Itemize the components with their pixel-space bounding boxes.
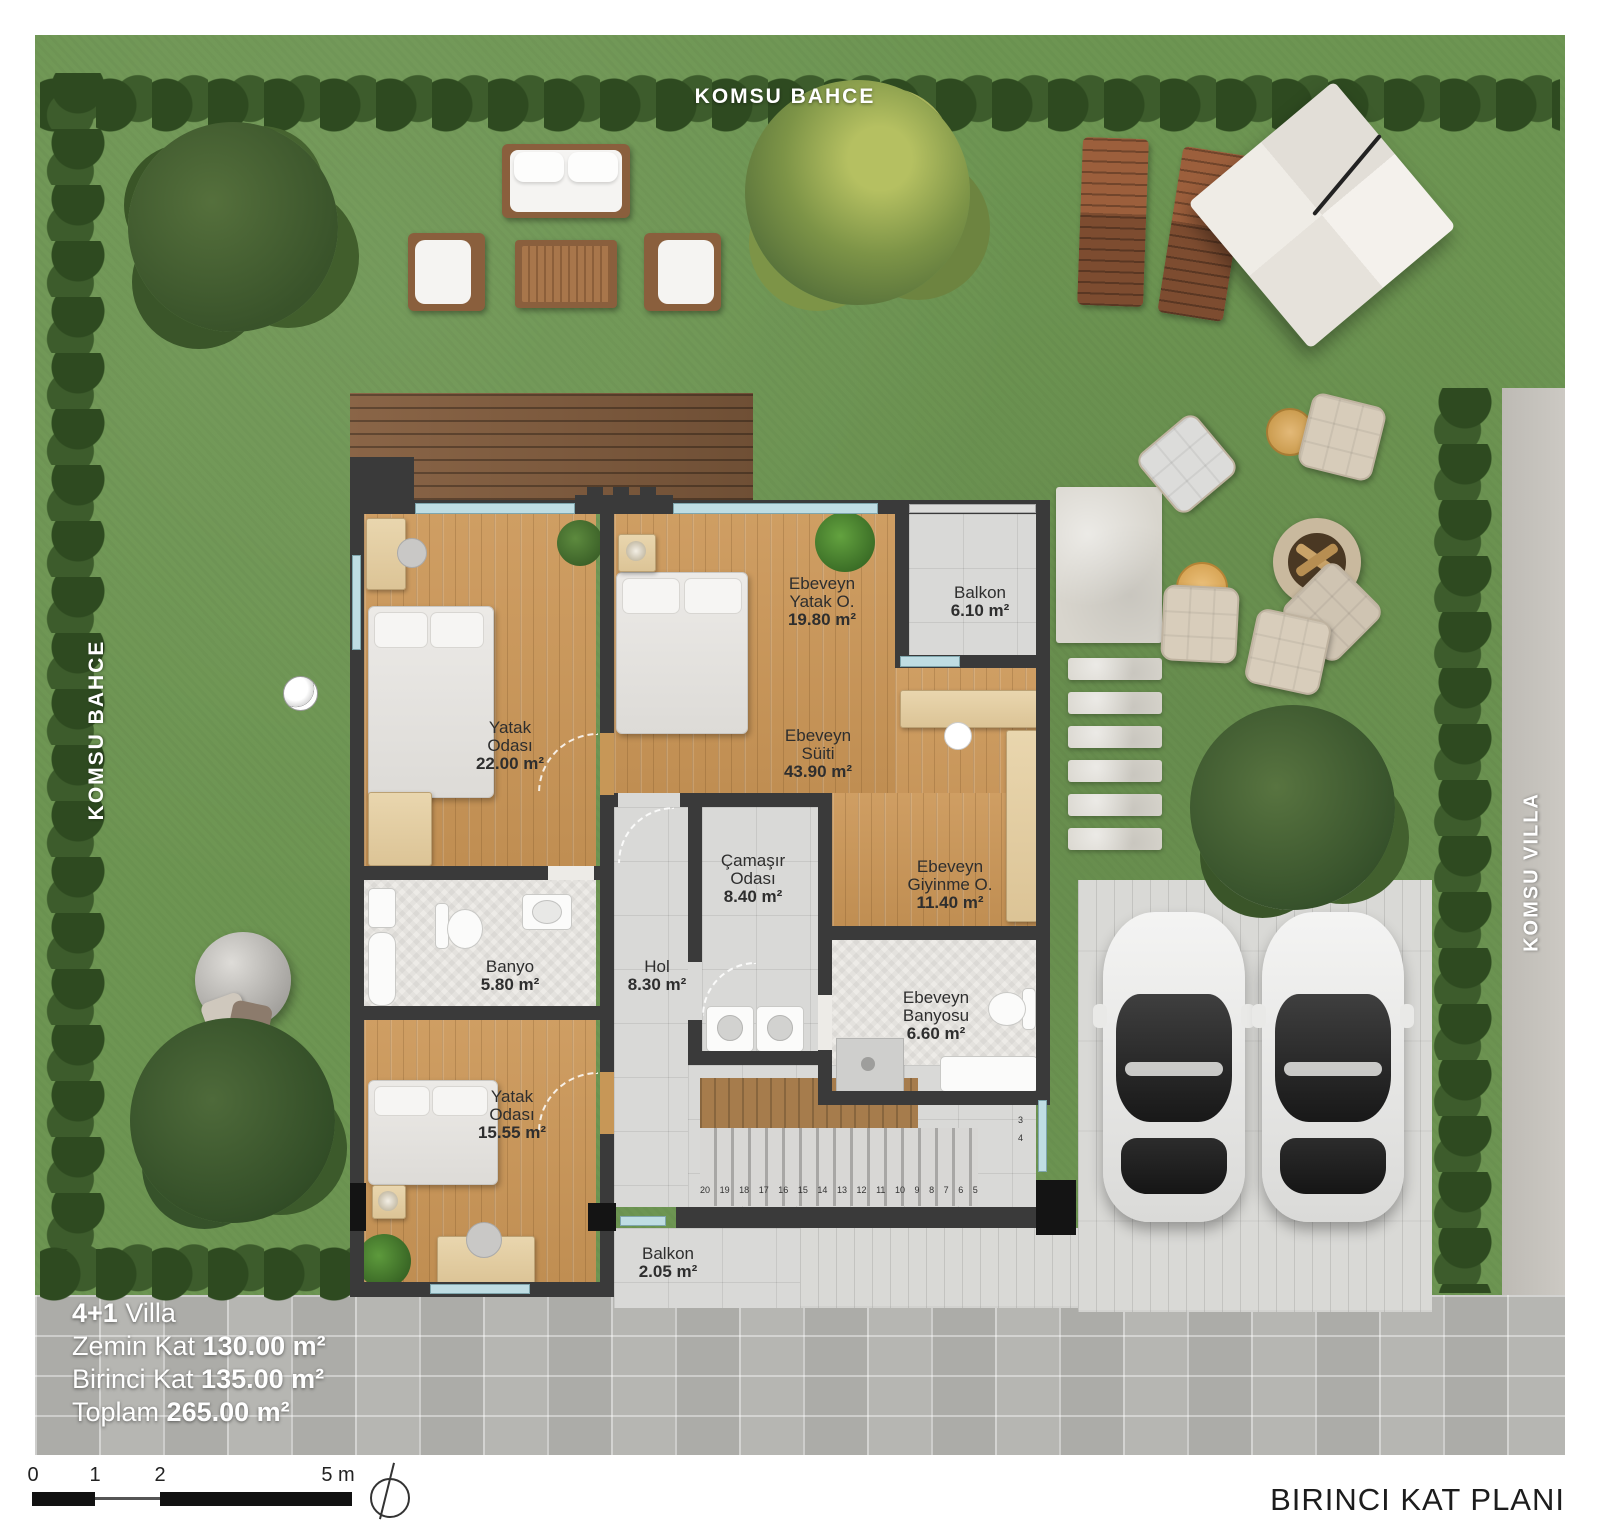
car-windshield-roof xyxy=(1275,994,1391,1122)
room-label-yatak-2: Yatak Odası15.55 m² xyxy=(478,1088,546,1142)
stair-number: 10 xyxy=(895,1185,905,1199)
wall-segment xyxy=(587,487,603,501)
sofa-pillow xyxy=(568,152,618,182)
wall-segment xyxy=(600,500,614,1297)
lamp-2 xyxy=(378,1191,398,1211)
info-text: Birinci Kat xyxy=(72,1364,201,1394)
pillow xyxy=(684,578,742,614)
tree xyxy=(130,1018,335,1223)
scale-bar-line xyxy=(95,1497,160,1500)
garden-chair xyxy=(644,233,721,311)
room-label-camasir: Çamaşır Odası8.40 m² xyxy=(721,852,785,906)
site-plan: 201918171615141312111098765 2 3 4 Ebevey… xyxy=(35,35,1565,1455)
info-line: Toplam 265.00 m² xyxy=(72,1396,326,1429)
info-text: Zemin Kat xyxy=(72,1331,203,1361)
info-line: 4+1 Villa xyxy=(72,1297,326,1330)
stair-number: 19 xyxy=(720,1185,730,1199)
window xyxy=(620,1216,666,1226)
scale-bar-segment xyxy=(32,1492,95,1506)
floor-cushion xyxy=(1243,607,1333,697)
closet xyxy=(1006,730,1038,922)
stone-step xyxy=(1068,692,1162,714)
door-opening xyxy=(548,866,594,880)
room-name: Çamaşır Odası xyxy=(721,851,785,888)
stone-step xyxy=(1068,726,1162,748)
chair-cushion xyxy=(658,240,714,304)
room-label-ebeveyn-banyosu: Ebeveyn Banyosu6.60 m² xyxy=(903,989,969,1043)
room-area: 6.10 m² xyxy=(951,602,1010,620)
plant xyxy=(815,512,875,572)
stone-step xyxy=(1068,828,1162,850)
room-name: Hol xyxy=(644,957,670,976)
scale-tick: 0 xyxy=(27,1464,38,1487)
room-area: 6.60 m² xyxy=(903,1025,969,1043)
room-area: 8.30 m² xyxy=(628,976,687,994)
wall-segment xyxy=(640,487,656,501)
window xyxy=(900,656,960,667)
info-line: Zemin Kat 130.00 m² xyxy=(72,1330,326,1363)
car-rear-window xyxy=(1280,1138,1386,1194)
info-line: Birinci Kat 135.00 m² xyxy=(72,1363,326,1396)
sink-basin xyxy=(532,900,562,924)
label-neighbor-garden-left: KOMSU BAHCE xyxy=(85,640,109,821)
stair-number: 11 xyxy=(876,1185,885,1199)
floor-cushion xyxy=(1160,584,1240,664)
wall-segment xyxy=(350,1006,614,1020)
room-name: Ebeveyn Süiti xyxy=(785,726,851,763)
room-label-balkon-alt: Balkon2.05 m² xyxy=(639,1245,698,1281)
floor-hall xyxy=(614,807,688,1207)
room-label-giyinme: Ebeveyn Giyinme O.11.40 m² xyxy=(907,858,992,912)
room-label-suiti: Ebeveyn Süiti43.90 m² xyxy=(784,727,852,781)
vanity xyxy=(940,1056,1038,1092)
stair-number: 6 xyxy=(958,1185,963,1199)
car-windshield-roof xyxy=(1116,994,1232,1122)
stone-step xyxy=(1068,794,1162,816)
info-bold: 265.00 m² xyxy=(167,1397,290,1427)
hedge-right xyxy=(1428,388,1502,1293)
room-area: 2.05 m² xyxy=(639,1263,698,1281)
info-bold: 130.00 m² xyxy=(203,1331,326,1361)
soccer-ball xyxy=(283,676,318,711)
dresser-bedroom-1 xyxy=(368,792,432,866)
entry-deck xyxy=(800,1228,1078,1308)
washer-door xyxy=(717,1015,743,1041)
page-title: BIRINCI KAT PLANI xyxy=(1270,1482,1565,1518)
pillow xyxy=(622,578,680,614)
window xyxy=(430,1284,530,1294)
scale-tick: 1 xyxy=(89,1464,100,1487)
wall-segment xyxy=(588,1203,616,1231)
stair-number: 15 xyxy=(798,1185,808,1199)
stair-number: 3 xyxy=(1018,1115,1023,1125)
wall-segment xyxy=(613,487,629,501)
scale-bar-segment xyxy=(160,1492,352,1506)
door-opening xyxy=(688,962,702,1020)
room-label-hol: Hol8.30 m² xyxy=(628,958,687,994)
stair-number: 13 xyxy=(837,1185,847,1199)
toilet-2 xyxy=(368,888,396,928)
toilet xyxy=(447,909,483,949)
tree xyxy=(1190,705,1395,910)
room-name: Banyo xyxy=(486,957,534,976)
stair-number: 9 xyxy=(915,1185,920,1199)
room-area: 19.80 m² xyxy=(788,611,856,629)
wall-segment xyxy=(818,1091,1050,1105)
room-area: 11.40 m² xyxy=(907,894,992,912)
pillow xyxy=(374,612,428,648)
car-rear-window xyxy=(1121,1138,1227,1194)
car-mirror xyxy=(1093,1004,1107,1028)
car-mirror xyxy=(1400,1004,1414,1028)
car-roof-seam xyxy=(1284,1062,1382,1076)
window xyxy=(352,555,361,650)
wall-segment xyxy=(688,1051,832,1065)
table-top xyxy=(522,246,610,302)
room-label-ebeveyn-yatak: Ebeveyn Yatak O.19.80 m² xyxy=(788,575,856,629)
wall-segment xyxy=(350,457,414,505)
stair-number: 7 xyxy=(944,1185,949,1199)
chair xyxy=(397,538,427,568)
door-opening xyxy=(618,793,680,807)
window xyxy=(415,503,575,514)
info-text: Toplam xyxy=(72,1397,167,1427)
wall-segment xyxy=(895,500,909,668)
pillow xyxy=(374,1086,430,1116)
room-name: Ebeveyn Giyinme O. xyxy=(907,857,992,894)
villa-info: 4+1 Villa Zemin Kat 130.00 m² Birinci Ka… xyxy=(72,1297,326,1429)
stone-step xyxy=(1068,658,1162,680)
stair-number: 12 xyxy=(857,1185,867,1199)
garden-table xyxy=(515,240,617,308)
bathtub xyxy=(368,932,396,1006)
floor-plan-page: 201918171615141312111098765 2 3 4 Ebevey… xyxy=(0,0,1600,1523)
hedge-bottom-left xyxy=(40,1243,355,1305)
car-roof-seam xyxy=(1125,1062,1223,1076)
stair-number: 5 xyxy=(973,1185,978,1199)
window xyxy=(673,503,878,514)
wall-segment xyxy=(832,926,1036,940)
desk-chair xyxy=(466,1222,502,1258)
window xyxy=(1038,1100,1047,1172)
room-name: Ebeveyn Banyosu xyxy=(903,988,969,1025)
scale-tick: 5 m xyxy=(321,1464,354,1487)
pillow xyxy=(430,612,484,648)
wall-segment xyxy=(676,1207,1044,1228)
garden-sofa xyxy=(502,144,630,218)
shower-drain xyxy=(861,1057,875,1071)
stair-run-numbers: 201918171615141312111098765 xyxy=(700,1185,978,1199)
info-bold: 4+1 xyxy=(72,1298,118,1328)
room-area: 8.40 m² xyxy=(721,888,785,906)
wardrobe-knob xyxy=(944,722,972,750)
plant-2 xyxy=(357,1234,411,1288)
room-area: 15.55 m² xyxy=(478,1124,546,1142)
room-label-balkon-ust: Balkon6.10 m² xyxy=(951,584,1010,620)
room-name: Balkon xyxy=(954,583,1006,602)
room-area: 43.90 m² xyxy=(784,763,852,781)
room-name: Yatak Odası xyxy=(489,1087,534,1124)
door-opening xyxy=(818,995,832,1050)
info-text: Villa xyxy=(118,1298,176,1328)
lamp xyxy=(626,541,646,561)
wall-segment xyxy=(1036,500,1050,1105)
wardrobe xyxy=(900,690,1038,728)
room-label-yatak-1: Yatak Odası22.00 m² xyxy=(476,719,544,773)
toilet-master xyxy=(988,992,1026,1026)
window xyxy=(909,504,1036,513)
stone-pad xyxy=(1056,487,1162,643)
stone-step xyxy=(1068,760,1162,782)
dryer-door xyxy=(767,1015,793,1041)
door-opening xyxy=(600,1072,614,1134)
room-name: Ebeveyn Yatak O. xyxy=(789,574,855,611)
room-name: Yatak Odası xyxy=(487,718,532,755)
room-area: 22.00 m² xyxy=(476,755,544,773)
info-bold: 135.00 m² xyxy=(201,1364,324,1394)
label-neighbor-garden-top: KOMSU BAHCE xyxy=(695,85,876,109)
wall-segment xyxy=(688,793,702,1065)
room-area: 5.80 m² xyxy=(481,976,540,994)
wall-segment xyxy=(350,1183,366,1231)
scale-tick: 2 xyxy=(154,1464,165,1487)
door-opening xyxy=(600,733,614,795)
stair-number: 17 xyxy=(759,1185,769,1199)
stair-number: 8 xyxy=(929,1185,934,1199)
car xyxy=(1262,912,1404,1222)
stair-number: 4 xyxy=(1018,1133,1023,1143)
stair-number: 20 xyxy=(700,1185,710,1199)
garden-chair xyxy=(408,233,485,311)
chair-cushion xyxy=(415,240,471,304)
sofa-pillow xyxy=(514,152,564,182)
stair-number: 14 xyxy=(817,1185,827,1199)
car-mirror xyxy=(1252,1004,1266,1028)
sun-lounger xyxy=(1077,137,1149,307)
room-label-banyo: Banyo5.80 m² xyxy=(481,958,540,994)
stair-number: 18 xyxy=(739,1185,749,1199)
tree-yellow-green xyxy=(745,80,970,305)
north-compass-icon xyxy=(370,1478,410,1518)
tree xyxy=(128,122,338,332)
label-neighbor-villa: KOMSU VILLA xyxy=(1521,792,1544,952)
stair-number: 16 xyxy=(778,1185,788,1199)
plant xyxy=(557,520,603,566)
wall-segment xyxy=(1036,1180,1076,1235)
car xyxy=(1103,912,1245,1222)
room-name: Balkon xyxy=(642,1244,694,1263)
